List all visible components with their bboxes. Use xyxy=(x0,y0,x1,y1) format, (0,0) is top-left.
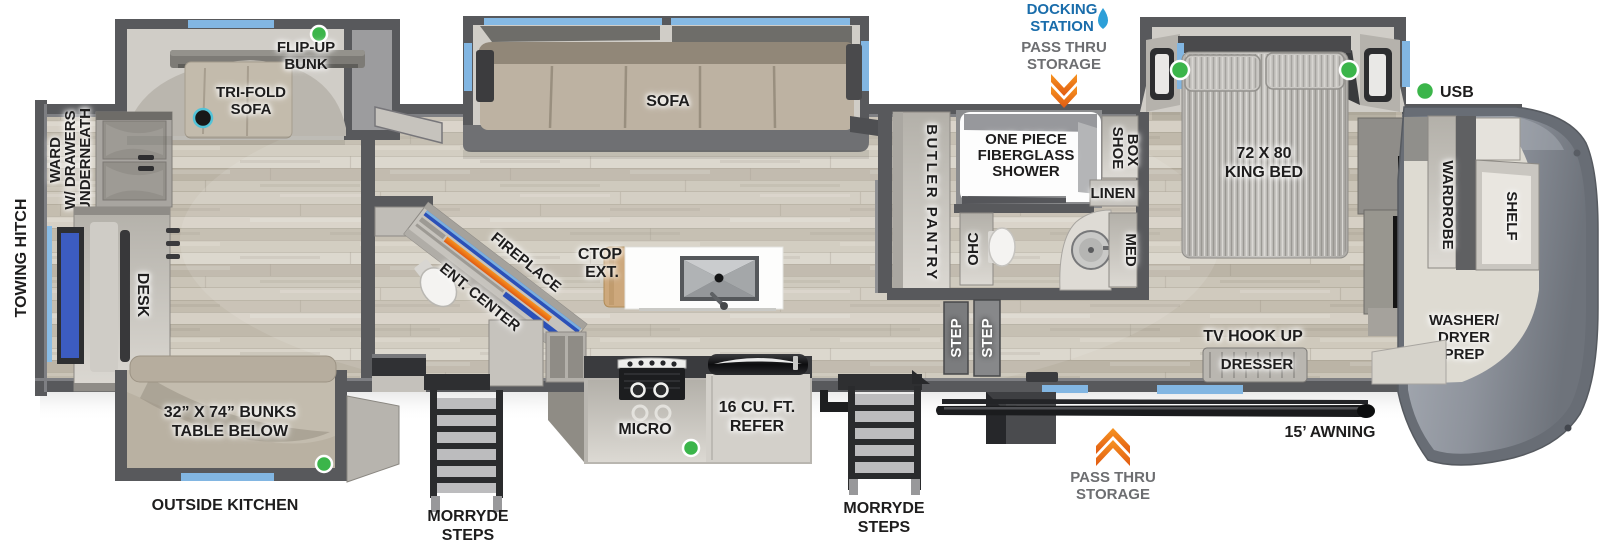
svg-text:WARDROBE: WARDROBE xyxy=(1439,160,1456,249)
svg-text:SHELF: SHELF xyxy=(1503,191,1520,240)
svg-text:WASHER/: WASHER/ xyxy=(1429,312,1500,329)
svg-text:BOX: BOX xyxy=(1124,134,1141,167)
svg-text:TRI-FOLD: TRI-FOLD xyxy=(216,84,286,101)
svg-text:PREP: PREP xyxy=(1444,346,1485,363)
svg-text:MORRYDE: MORRYDE xyxy=(427,508,509,525)
svg-text:FIBERGLASS: FIBERGLASS xyxy=(978,147,1075,164)
svg-text:SOFA: SOFA xyxy=(646,93,690,110)
svg-text:DESK: DESK xyxy=(134,273,151,318)
svg-text:STORAGE: STORAGE xyxy=(1076,486,1150,503)
svg-text:PASS THRU: PASS THRU xyxy=(1021,39,1107,56)
svg-text:LINEN: LINEN xyxy=(1091,185,1136,202)
svg-text:FLIP-UP: FLIP-UP xyxy=(277,39,335,56)
svg-text:STORAGE: STORAGE xyxy=(1027,56,1101,73)
svg-text:15’ AWNING: 15’ AWNING xyxy=(1285,424,1376,441)
svg-text:ONE PIECE: ONE PIECE xyxy=(985,131,1067,148)
svg-text:32” X 74” BUNKS: 32” X 74” BUNKS xyxy=(164,404,297,421)
svg-text:UNDERNEATH: UNDERNEATH xyxy=(77,108,94,212)
svg-text:STEP: STEP xyxy=(948,318,965,357)
svg-text:SOFA: SOFA xyxy=(231,101,272,118)
svg-text:DRESSER: DRESSER xyxy=(1221,356,1294,373)
svg-text:OUTSIDE KITCHEN: OUTSIDE KITCHEN xyxy=(152,497,299,514)
svg-text:BUNK: BUNK xyxy=(284,56,327,73)
svg-text:MORRYDE: MORRYDE xyxy=(843,500,925,517)
svg-text:TOWING HITCH: TOWING HITCH xyxy=(13,199,30,318)
svg-text:TABLE BELOW: TABLE BELOW xyxy=(172,423,289,440)
svg-text:PASS THRU: PASS THRU xyxy=(1070,469,1156,486)
svg-text:STEP: STEP xyxy=(979,318,996,357)
svg-text:STEPS: STEPS xyxy=(858,519,911,536)
svg-text:DOCKING: DOCKING xyxy=(1027,1,1098,18)
svg-text:OHC: OHC xyxy=(965,232,982,266)
svg-text:STATION: STATION xyxy=(1030,18,1094,35)
svg-text:MED: MED xyxy=(1122,233,1139,267)
svg-text:SHOE: SHOE xyxy=(1109,127,1126,170)
svg-text:USB: USB xyxy=(1440,84,1474,101)
svg-text:16 CU. FT.: 16 CU. FT. xyxy=(719,399,795,416)
svg-text:SHOWER: SHOWER xyxy=(992,163,1060,180)
svg-text:STEPS: STEPS xyxy=(442,527,495,544)
svg-text:TV HOOK UP: TV HOOK UP xyxy=(1203,328,1303,345)
svg-text:72 X 80: 72 X 80 xyxy=(1236,145,1291,162)
svg-text:BUTLER PANTRY: BUTLER PANTRY xyxy=(923,124,940,282)
svg-text:KING BED: KING BED xyxy=(1225,164,1303,181)
svg-text:EXT.: EXT. xyxy=(585,264,619,281)
svg-text:CTOP: CTOP xyxy=(578,246,622,263)
svg-text:REFER: REFER xyxy=(730,418,785,435)
svg-text:MICRO: MICRO xyxy=(618,421,671,438)
